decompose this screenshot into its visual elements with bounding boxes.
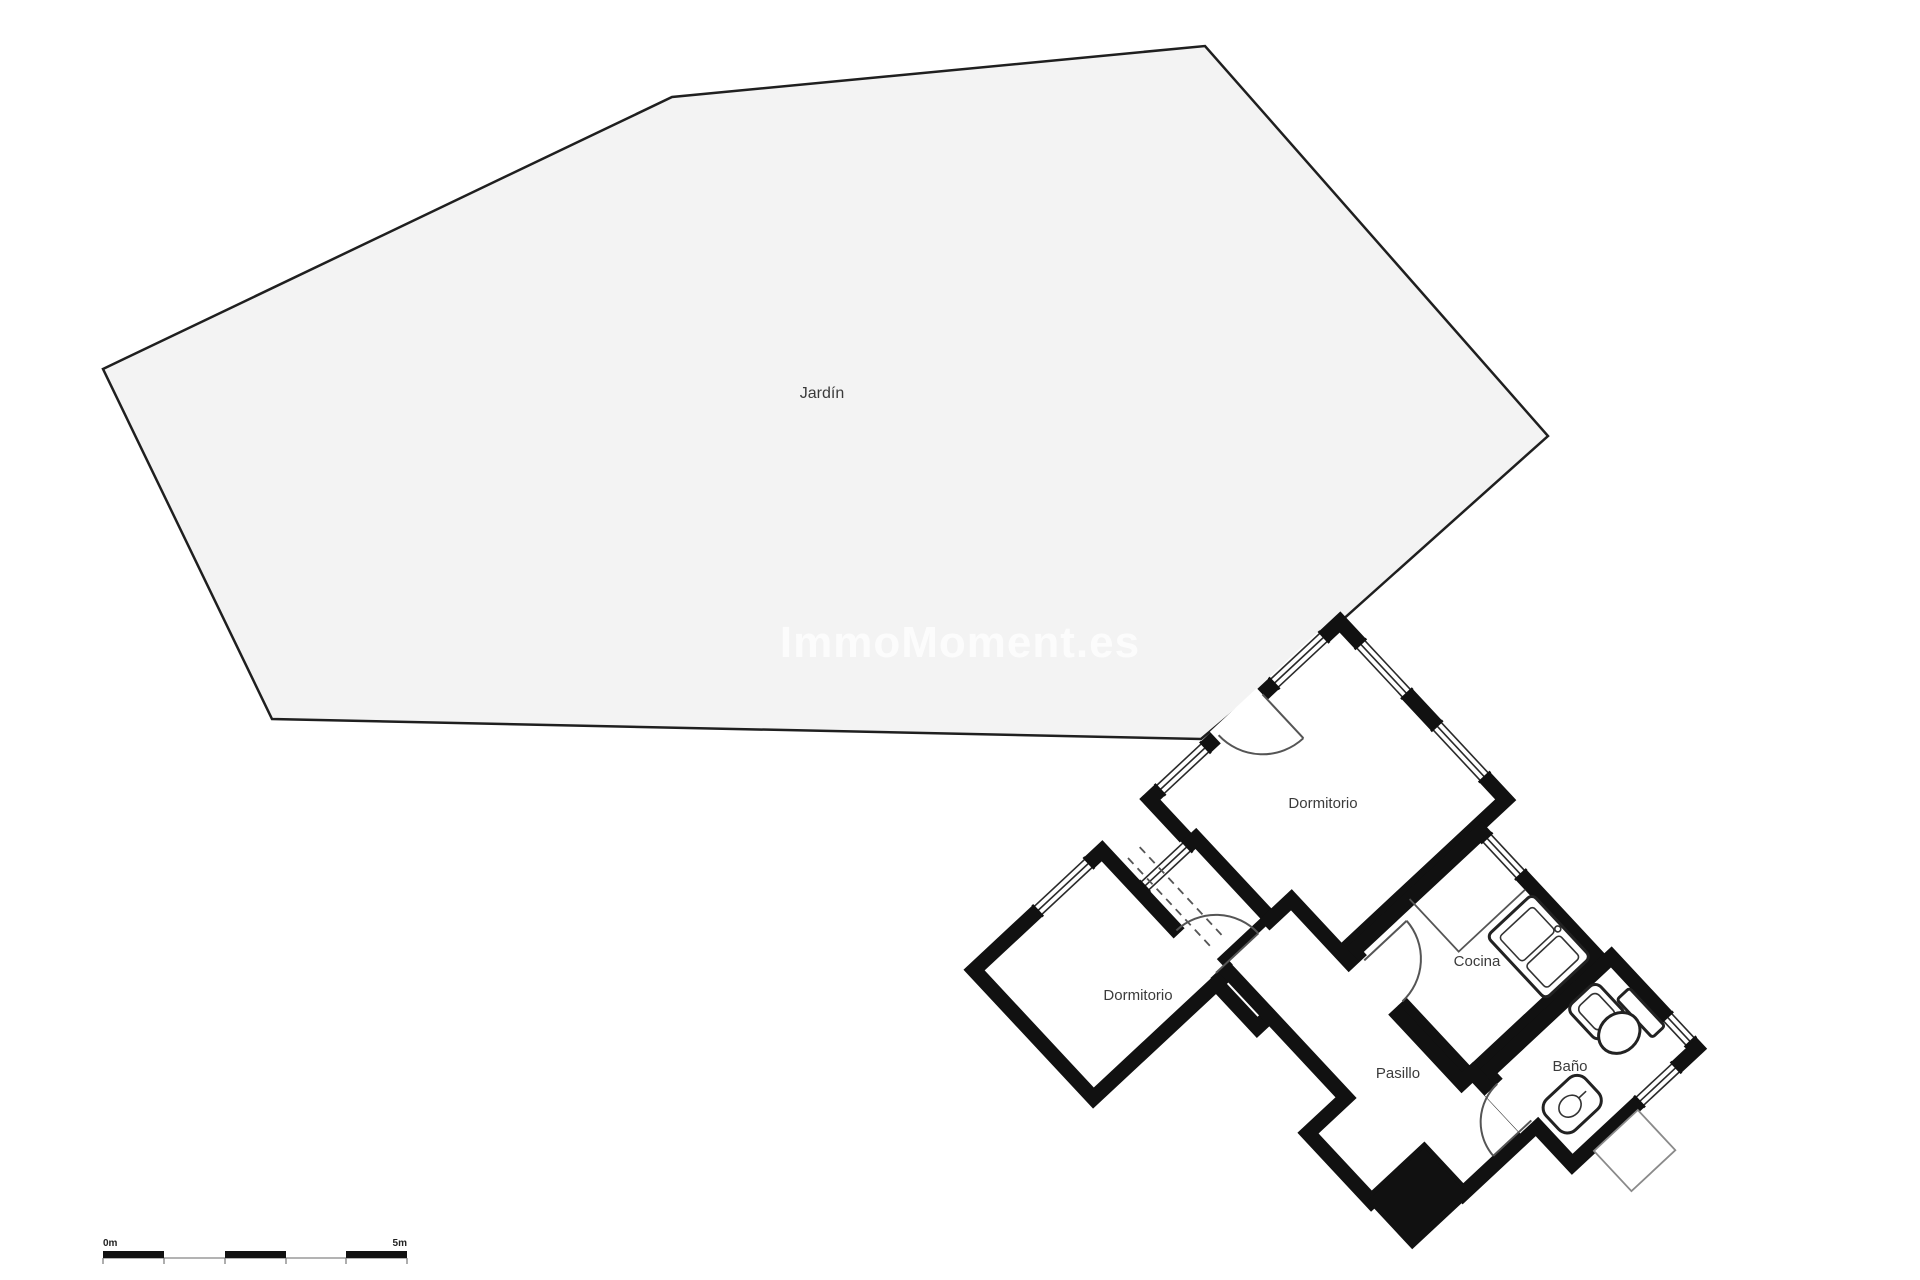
scale-end-label: 5m — [393, 1238, 408, 1249]
floorplan-canvas: Jardín ImmoMoment.es — [0, 0, 1920, 1280]
scale-bar: 0m 5m — [103, 1238, 407, 1264]
label-dormitorio-1: Dormitorio — [1288, 795, 1357, 812]
label-cocina: Cocina — [1454, 953, 1501, 970]
floorplan-page: Jardín ImmoMoment.es — [0, 0, 1920, 1280]
garden-label: Jardín — [800, 385, 844, 402]
label-bano: Baño — [1552, 1058, 1587, 1075]
watermark-text: ImmoMoment.es — [780, 618, 1140, 667]
label-dormitorio-2: Dormitorio — [1103, 987, 1172, 1004]
scale-start-label: 0m — [103, 1238, 118, 1249]
label-pasillo: Pasillo — [1376, 1065, 1420, 1082]
